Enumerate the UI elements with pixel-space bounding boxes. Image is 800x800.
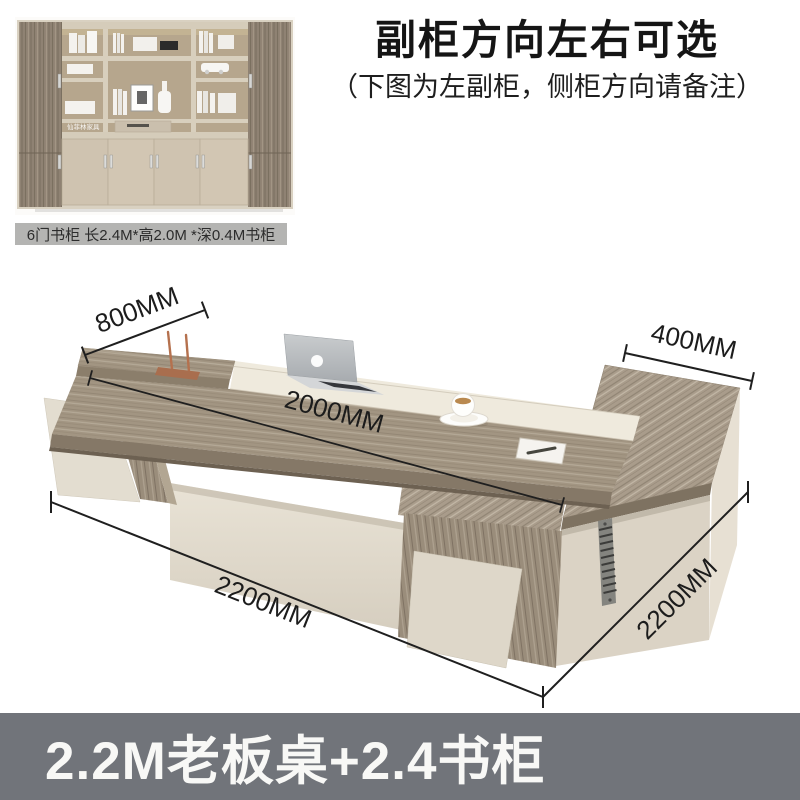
headline: 副柜方向左右可选 （下图为左副柜，侧柜方向请备注） xyxy=(296,16,798,103)
product-page: 仙菲林家具 6门书柜 长2.4M*高2.0M *深0.4M书柜 副柜方向左右可选… xyxy=(0,0,800,800)
brand-watermark: 仙菲林家具 xyxy=(67,122,100,131)
product-banner-text: 2.2M老板桌+2.4书柜 xyxy=(0,719,545,795)
cabinet-shadow xyxy=(35,209,283,212)
page-title: 副柜方向左右可选 xyxy=(296,16,798,64)
cabinet-doors xyxy=(62,139,248,205)
bookcase-caption: 6门书柜 长2.4M*高2.0M *深0.4M书柜 xyxy=(15,223,287,245)
product-banner: 2.2M老板桌+2.4书柜 xyxy=(0,713,800,800)
dim-label-400: 400MM xyxy=(648,317,739,365)
page-subtitle: （下图为左副柜，侧柜方向请备注） xyxy=(296,71,798,103)
bookcase-illustration: 仙菲林家具 xyxy=(15,17,295,215)
bookcase-caption-text: 6门书柜 长2.4M*高2.0M *深0.4M书柜 xyxy=(27,224,275,245)
dim-label-800: 800MM xyxy=(91,280,183,339)
bookcase-photo: 仙菲林家具 xyxy=(15,17,295,215)
apple-logo-icon xyxy=(311,355,323,367)
desk-illustration: 800MM 400MM 2000MM 2200MM 2200MM xyxy=(0,255,800,725)
